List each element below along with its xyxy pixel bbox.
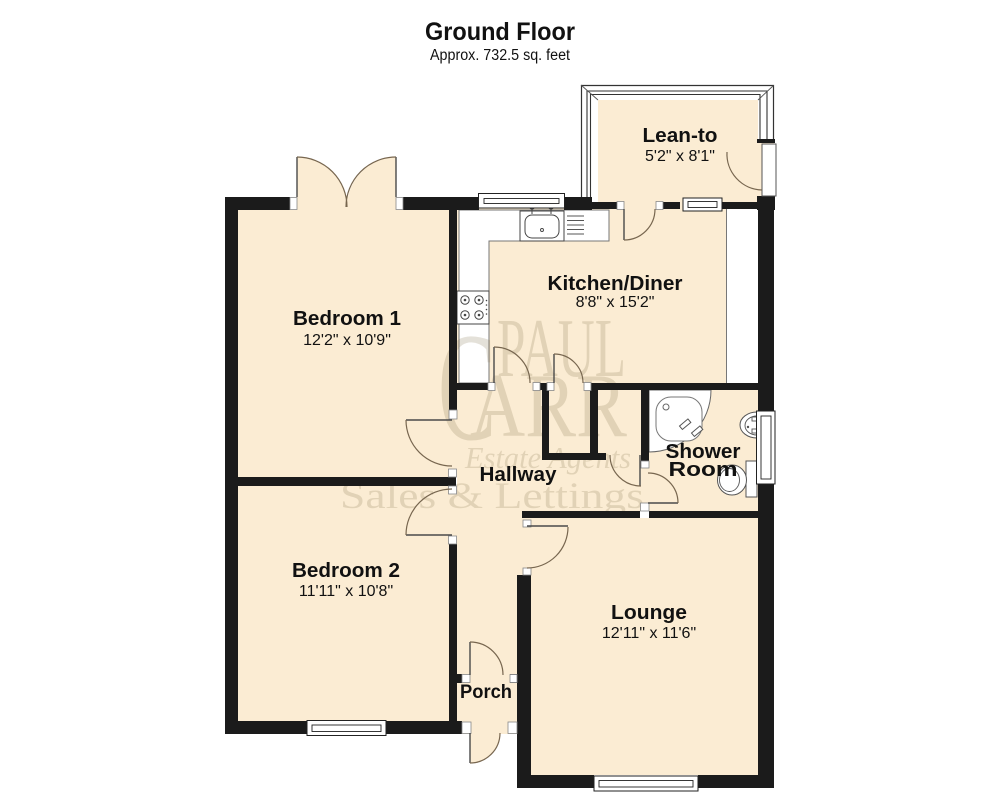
- svg-text:Ground Floor: Ground Floor: [425, 18, 575, 46]
- svg-text:Approx. 732.5 sq. feet: Approx. 732.5 sq. feet: [430, 47, 571, 64]
- svg-text:Lean-to: Lean-to: [643, 125, 718, 147]
- svg-text:Hallway: Hallway: [480, 464, 558, 486]
- svg-text:Room: Room: [669, 459, 738, 481]
- svg-text:Porch: Porch: [460, 682, 512, 703]
- svg-text:Lounge: Lounge: [611, 602, 687, 624]
- svg-text:5'2" x 8'1": 5'2" x 8'1": [645, 148, 715, 165]
- svg-text:Kitchen/Diner: Kitchen/Diner: [548, 273, 683, 295]
- svg-text:Bedroom 2: Bedroom 2: [292, 560, 400, 582]
- svg-text:11'11" x 10'8": 11'11" x 10'8": [299, 583, 393, 600]
- svg-text:12'11" x 11'6": 12'11" x 11'6": [602, 625, 696, 642]
- svg-text:Bedroom 1: Bedroom 1: [293, 308, 401, 330]
- svg-text:8'8" x 15'2": 8'8" x 15'2": [576, 294, 655, 311]
- svg-text:12'2" x 10'9": 12'2" x 10'9": [303, 332, 391, 349]
